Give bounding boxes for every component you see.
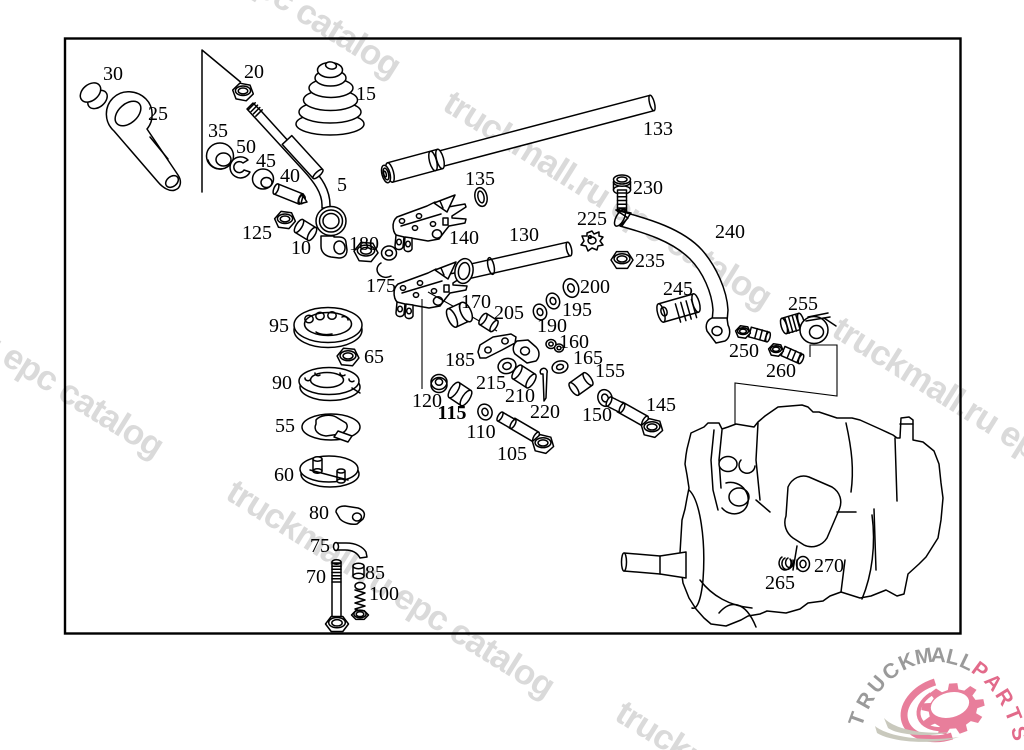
svg-text:235: 235	[635, 250, 665, 272]
svg-text:205: 205	[494, 302, 524, 324]
svg-text:65: 65	[364, 346, 384, 368]
svg-text:220: 220	[530, 401, 560, 423]
svg-text:70: 70	[306, 566, 326, 588]
svg-text:5: 5	[337, 174, 347, 196]
svg-text:90: 90	[272, 372, 292, 394]
svg-text:85: 85	[365, 562, 385, 584]
svg-text:150: 150	[582, 404, 612, 426]
svg-text:125: 125	[242, 222, 272, 244]
svg-text:180: 180	[349, 233, 379, 255]
svg-text:75: 75	[310, 535, 330, 557]
svg-text:260: 260	[766, 360, 796, 382]
svg-text:35: 35	[208, 120, 228, 142]
svg-text:130: 130	[509, 224, 539, 246]
svg-text:215: 215	[476, 372, 506, 394]
svg-text:110: 110	[466, 421, 495, 443]
svg-text:135: 135	[465, 168, 495, 190]
svg-text:S: S	[1006, 724, 1024, 743]
svg-text:155: 155	[595, 360, 625, 382]
svg-text:95: 95	[269, 315, 289, 337]
svg-text:25: 25	[148, 103, 168, 125]
svg-text:60: 60	[274, 464, 294, 486]
svg-text:T: T	[1000, 704, 1024, 725]
svg-text:133: 133	[643, 118, 673, 140]
svg-text:15: 15	[356, 83, 376, 105]
svg-text:185: 185	[445, 349, 475, 371]
svg-text:100: 100	[369, 583, 399, 605]
svg-text:250: 250	[729, 340, 759, 362]
svg-text:200: 200	[580, 276, 610, 298]
svg-text:115: 115	[438, 402, 467, 424]
svg-text:45: 45	[256, 150, 276, 172]
svg-text:80: 80	[309, 502, 329, 524]
svg-text:145: 145	[646, 394, 676, 416]
svg-text:255: 255	[788, 293, 818, 315]
svg-text:270: 270	[814, 555, 844, 577]
svg-text:230: 230	[633, 177, 663, 199]
svg-text:truckmall.ru epc catalog: truckmall.ru epc catalog	[0, 232, 171, 466]
svg-text:240: 240	[715, 221, 745, 243]
svg-text:245: 245	[663, 278, 693, 300]
svg-text:175: 175	[366, 275, 396, 297]
svg-text:55: 55	[275, 415, 295, 437]
svg-text:265: 265	[765, 572, 795, 594]
svg-text:T: T	[844, 709, 870, 729]
svg-text:140: 140	[449, 227, 479, 249]
svg-text:105: 105	[497, 443, 527, 465]
svg-text:225: 225	[577, 208, 607, 230]
svg-text:40: 40	[280, 165, 300, 187]
svg-text:20: 20	[244, 61, 264, 83]
svg-text:50: 50	[236, 136, 256, 158]
svg-text:truckmall.ru epc catalog: truckmall.ru epc catalog	[609, 693, 951, 750]
svg-text:30: 30	[103, 63, 123, 85]
svg-text:10: 10	[291, 237, 311, 259]
svg-text:170: 170	[461, 291, 491, 313]
